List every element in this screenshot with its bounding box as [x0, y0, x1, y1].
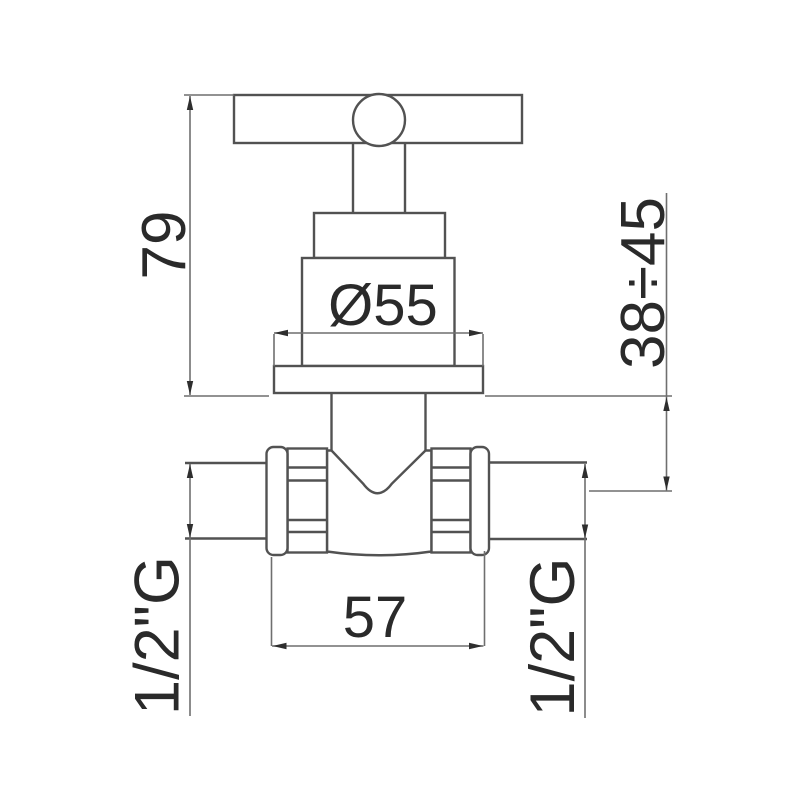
svg-text:1/2"G: 1/2"G	[123, 556, 193, 715]
svg-text:79: 79	[130, 211, 199, 280]
svg-text:1/2"G: 1/2"G	[518, 558, 588, 717]
svg-text:57: 57	[343, 585, 408, 650]
svg-text:Ø55: Ø55	[328, 273, 438, 338]
svg-text:38÷45: 38÷45	[609, 197, 678, 369]
